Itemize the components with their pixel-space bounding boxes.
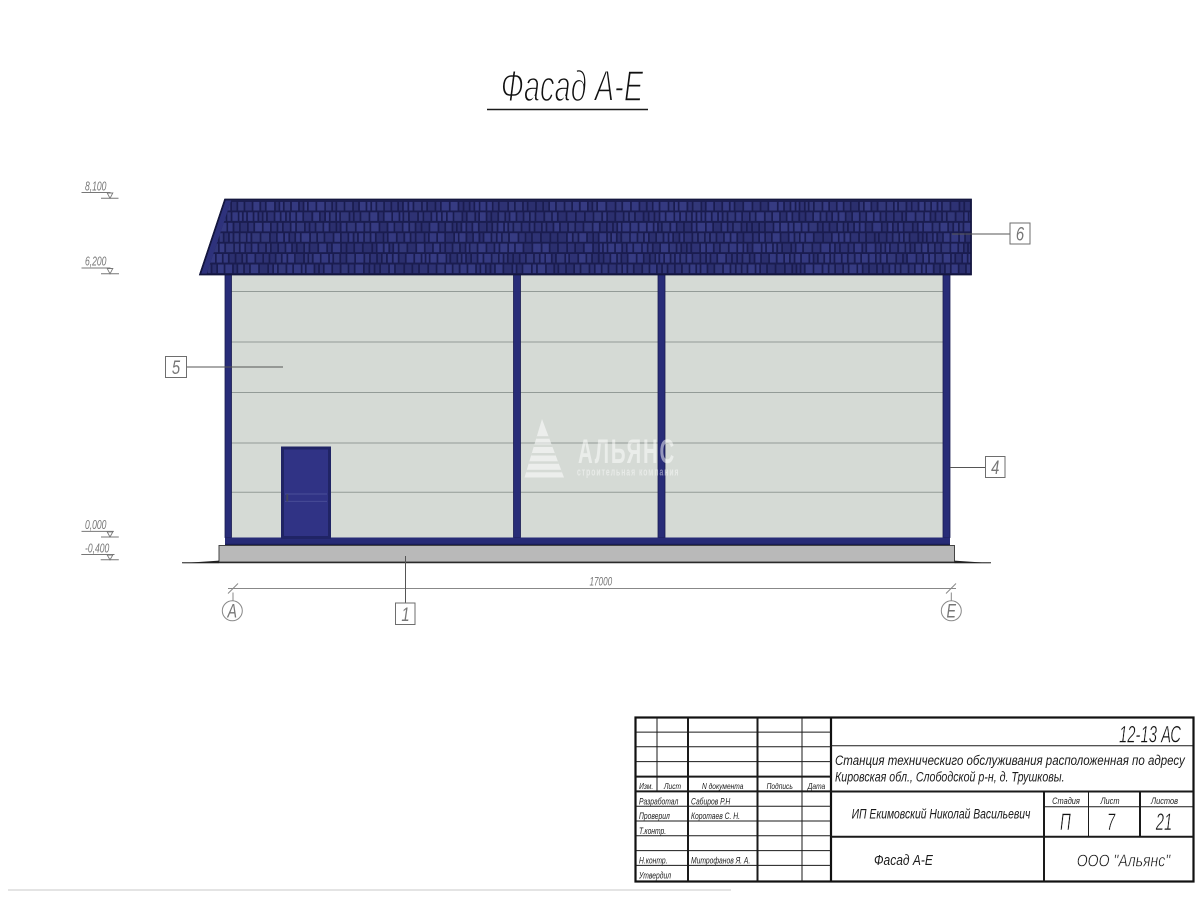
svg-text:12-13 АС: 12-13 АС <box>1119 722 1181 748</box>
svg-text:ИП Екимовский Николай Васильев: ИП Екимовский Николай Васильевич <box>852 806 1031 822</box>
svg-text:0,000: 0,000 <box>85 518 107 532</box>
svg-text:Лист: Лист <box>663 781 681 791</box>
svg-text:21: 21 <box>1155 810 1172 836</box>
svg-text:Кировская обл., Слободской р-н: Кировская обл., Слободской р-н, д. Трушк… <box>835 769 1065 785</box>
svg-text:Стадия: Стадия <box>1052 795 1080 806</box>
svg-text:-0,400: -0,400 <box>85 542 110 556</box>
svg-text:АЛЬЯНС: АЛЬЯНС <box>578 433 676 471</box>
svg-text:Подпись: Подпись <box>767 781 793 791</box>
svg-text:4: 4 <box>991 457 999 478</box>
svg-text:Коротаев С. Н.: Коротаев С. Н. <box>691 811 740 821</box>
svg-text:Митрофанов Я. А.: Митрофанов Я. А. <box>691 856 750 866</box>
svg-text:строительная компания: строительная компания <box>577 466 679 478</box>
svg-text:Лист: Лист <box>1100 795 1120 806</box>
svg-text:8,100: 8,100 <box>85 180 107 194</box>
svg-text:Станция техническиго обслужива: Станция техническиго обслуживания распол… <box>835 752 1186 768</box>
svg-text:А: А <box>227 601 237 622</box>
svg-text:5: 5 <box>172 357 181 378</box>
svg-text:Дата: Дата <box>807 781 825 791</box>
svg-text:Е: Е <box>947 601 957 622</box>
svg-text:6: 6 <box>1016 224 1025 245</box>
svg-text:Фасад А-Е: Фасад А-Е <box>501 61 644 111</box>
svg-text:Фасад А-Е: Фасад А-Е <box>874 852 934 869</box>
svg-text:П: П <box>1060 810 1071 836</box>
svg-text:Листов: Листов <box>1150 795 1178 806</box>
svg-text:Проверил: Проверил <box>639 811 670 821</box>
svg-text:Изм.: Изм. <box>639 781 653 791</box>
svg-text:N документа: N документа <box>702 781 743 791</box>
svg-text:ООО "Альянс": ООО "Альянс" <box>1077 851 1172 871</box>
svg-text:Сабиров Р.Н: Сабиров Р.Н <box>691 796 731 806</box>
svg-text:1: 1 <box>401 604 409 625</box>
svg-text:7: 7 <box>1107 810 1116 836</box>
svg-text:17000: 17000 <box>589 576 612 589</box>
svg-text:Н.контр.: Н.контр. <box>639 856 668 866</box>
svg-text:Разработал: Разработал <box>639 796 679 806</box>
svg-text:Т.контр.: Т.контр. <box>639 826 666 836</box>
svg-text:6,200: 6,200 <box>85 255 107 269</box>
svg-text:Утвердил: Утвердил <box>638 870 671 880</box>
